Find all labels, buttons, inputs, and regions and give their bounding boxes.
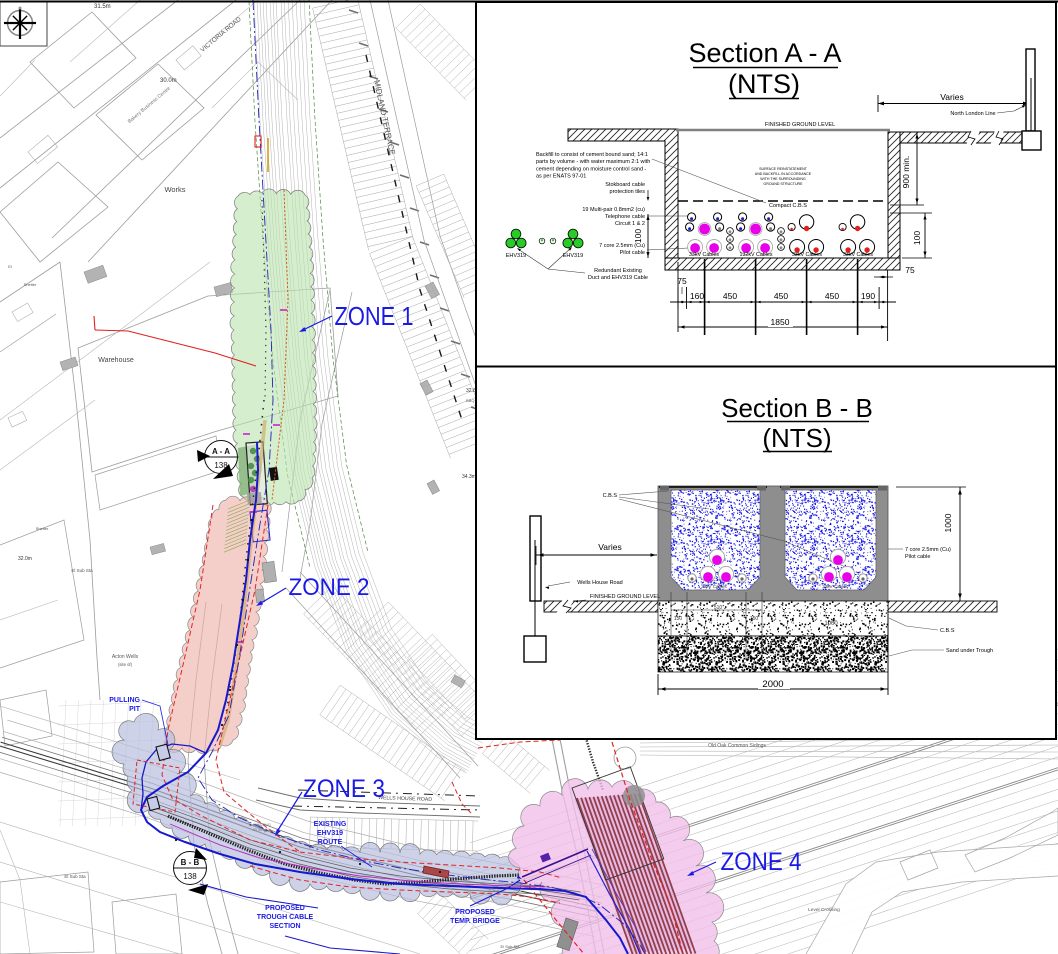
svg-text:Shelter: Shelter [36, 526, 49, 531]
svg-text:GROUND STRUCTURE: GROUND STRUCTURE [763, 182, 803, 186]
svg-text:450: 450 [825, 291, 839, 301]
svg-text:Warehouse: Warehouse [98, 357, 134, 364]
svg-text:FINISHED GROUND LEVEL: FINISHED GROUND LEVEL [590, 594, 660, 600]
svg-text:Telephone cable: Telephone cable [605, 214, 645, 220]
svg-text:19 Multi-pair 0.8mm2 (cu): 19 Multi-pair 0.8mm2 (cu) [582, 207, 645, 213]
svg-text:C.B.S: C.B.S [603, 493, 618, 499]
svg-text:100: 100 [633, 229, 643, 243]
svg-text:El Sub Sta: El Sub Sta [501, 944, 521, 949]
svg-text:1850: 1850 [771, 317, 790, 327]
svg-text:33kV Cables: 33kV Cables [843, 252, 873, 258]
svg-text:Varies: Varies [940, 92, 963, 102]
svg-text:B - B: B - B [181, 858, 200, 867]
svg-text:ZONE 2: ZONE 2 [289, 574, 370, 601]
svg-text:33kV Cables: 33kV Cables [792, 252, 822, 258]
svg-text:30.0m: 30.0m [160, 78, 177, 84]
svg-text:Duct and EHV319 Cable: Duct and EHV319 Cable [588, 275, 648, 281]
svg-text:Pilot cable: Pilot cable [620, 250, 645, 256]
svg-text:PIT: PIT [129, 706, 141, 713]
svg-text:SURFACE REINSTATEMENT: SURFACE REINSTATEMENT [759, 167, 808, 171]
svg-text:WITH THE SURROUNDING: WITH THE SURROUNDING [760, 177, 806, 181]
svg-text:75: 75 [905, 265, 915, 275]
svg-text:FINISHED GROUND LEVEL: FINISHED GROUND LEVEL [765, 122, 835, 128]
svg-text:Stokboard cable: Stokboard cable [605, 182, 645, 188]
svg-text:TROUGH CABLE: TROUGH CABLE [257, 914, 314, 921]
svg-text:Section B - B: Section B - B [721, 393, 873, 423]
svg-text:31.5m: 31.5m [94, 4, 111, 10]
svg-text:ZONE 4: ZONE 4 [721, 848, 802, 876]
svg-text:510: 510 [714, 605, 723, 611]
svg-text:PROPOSED: PROPOSED [455, 909, 495, 916]
svg-text:Sand under Trough: Sand under Trough [946, 648, 993, 654]
svg-text:Section A - A: Section A - A [688, 38, 841, 68]
svg-text:EXISTING: EXISTING [253, 823, 271, 827]
svg-text:Wells House Road: Wells House Road [577, 580, 622, 586]
svg-text:2000: 2000 [762, 679, 783, 690]
svg-text:PULLING: PULLING [109, 697, 140, 704]
svg-text:450: 450 [774, 291, 788, 301]
svg-text:100: 100 [912, 231, 922, 245]
svg-text:1000: 1000 [824, 621, 838, 627]
svg-text:(site of): (site of) [118, 662, 133, 667]
svg-text:32.0m: 32.0m [18, 556, 32, 562]
svg-text:132kV Cables: 132kV Cables [740, 252, 773, 258]
svg-text:El: El [8, 264, 12, 269]
svg-text:C.B.S: C.B.S [940, 628, 955, 634]
svg-text:(NTS): (NTS) [762, 423, 831, 453]
svg-text:(NTS): (NTS) [728, 69, 800, 99]
svg-text:PROPOSED: PROPOSED [265, 905, 305, 912]
svg-text:150: 150 [750, 616, 759, 622]
svg-text:AND BACKFILL IN ACCORDANCE: AND BACKFILL IN ACCORDANCE [755, 172, 812, 176]
svg-text:Old Oak Common Sidings: Old Oak Common Sidings [708, 743, 766, 749]
svg-text:Works: Works [164, 185, 185, 194]
svg-text:EHV319: EHV319 [563, 253, 584, 259]
svg-text:190: 190 [861, 291, 875, 301]
svg-text:as per ENATS 97-01: as per ENATS 97-01 [536, 174, 586, 180]
svg-text:EHV319: EHV319 [506, 253, 527, 259]
svg-text:Redundant Existing: Redundant Existing [594, 268, 642, 274]
svg-text:El Sub Sta: El Sub Sta [64, 874, 86, 879]
svg-text:450: 450 [723, 291, 737, 301]
svg-text:7 core 2.5mm (Cu): 7 core 2.5mm (Cu) [905, 547, 951, 553]
svg-text:North London Line: North London Line [950, 111, 995, 117]
svg-text:ZONE 1: ZONE 1 [335, 301, 414, 331]
svg-text:A - A: A - A [212, 447, 230, 456]
svg-text:33kV Cables: 33kV Cables [822, 584, 848, 589]
svg-text:EHV319: EHV319 [317, 830, 343, 837]
svg-text:Level Crossing: Level Crossing [808, 907, 840, 913]
svg-text:Compact C.B.S: Compact C.B.S [769, 203, 807, 209]
svg-text:BBQ: BBQ [466, 398, 474, 403]
svg-text:parts by volume - with water m: parts by volume - with water maximum 2:1… [536, 159, 650, 165]
svg-text:ROUTE: ROUTE [318, 839, 343, 846]
svg-text:protection tiles: protection tiles [610, 189, 646, 195]
svg-text:cement depending on moisture c: cement depending on moisture control san… [536, 166, 647, 172]
svg-text:150: 150 [674, 616, 683, 622]
svg-text:ZONE 3: ZONE 3 [303, 775, 385, 803]
svg-text:JR 50s/55s: JR 50s/55s [253, 828, 272, 832]
svg-text:Shelter: Shelter [24, 282, 37, 287]
svg-text:Pilot cable: Pilot cable [905, 554, 930, 560]
svg-text:33kV Cables: 33kV Cables [689, 252, 719, 258]
svg-text:Backfill to consist of cement: Backfill to consist of cement bound sand… [536, 152, 648, 158]
svg-text:Varies: Varies [598, 542, 621, 552]
svg-text:1000: 1000 [943, 513, 953, 532]
svg-text:75: 75 [677, 276, 687, 286]
svg-text:SECTION: SECTION [269, 923, 300, 930]
svg-text:33kV Cables: 33kV Cables [701, 584, 727, 589]
svg-text:EXISTING: EXISTING [314, 821, 347, 828]
svg-text:TEMP. BRIDGE: TEMP. BRIDGE [450, 918, 500, 925]
svg-text:Circuit 1 & 2: Circuit 1 & 2 [615, 221, 645, 227]
svg-text:160: 160 [690, 291, 704, 301]
svg-text:138: 138 [183, 872, 197, 881]
svg-text:900 min.: 900 min. [901, 156, 911, 189]
svg-text:Acton Wells: Acton Wells [112, 654, 139, 660]
svg-text:El Sub Sta: El Sub Sta [71, 568, 93, 573]
svg-text:34.3m: 34.3m [462, 474, 476, 480]
